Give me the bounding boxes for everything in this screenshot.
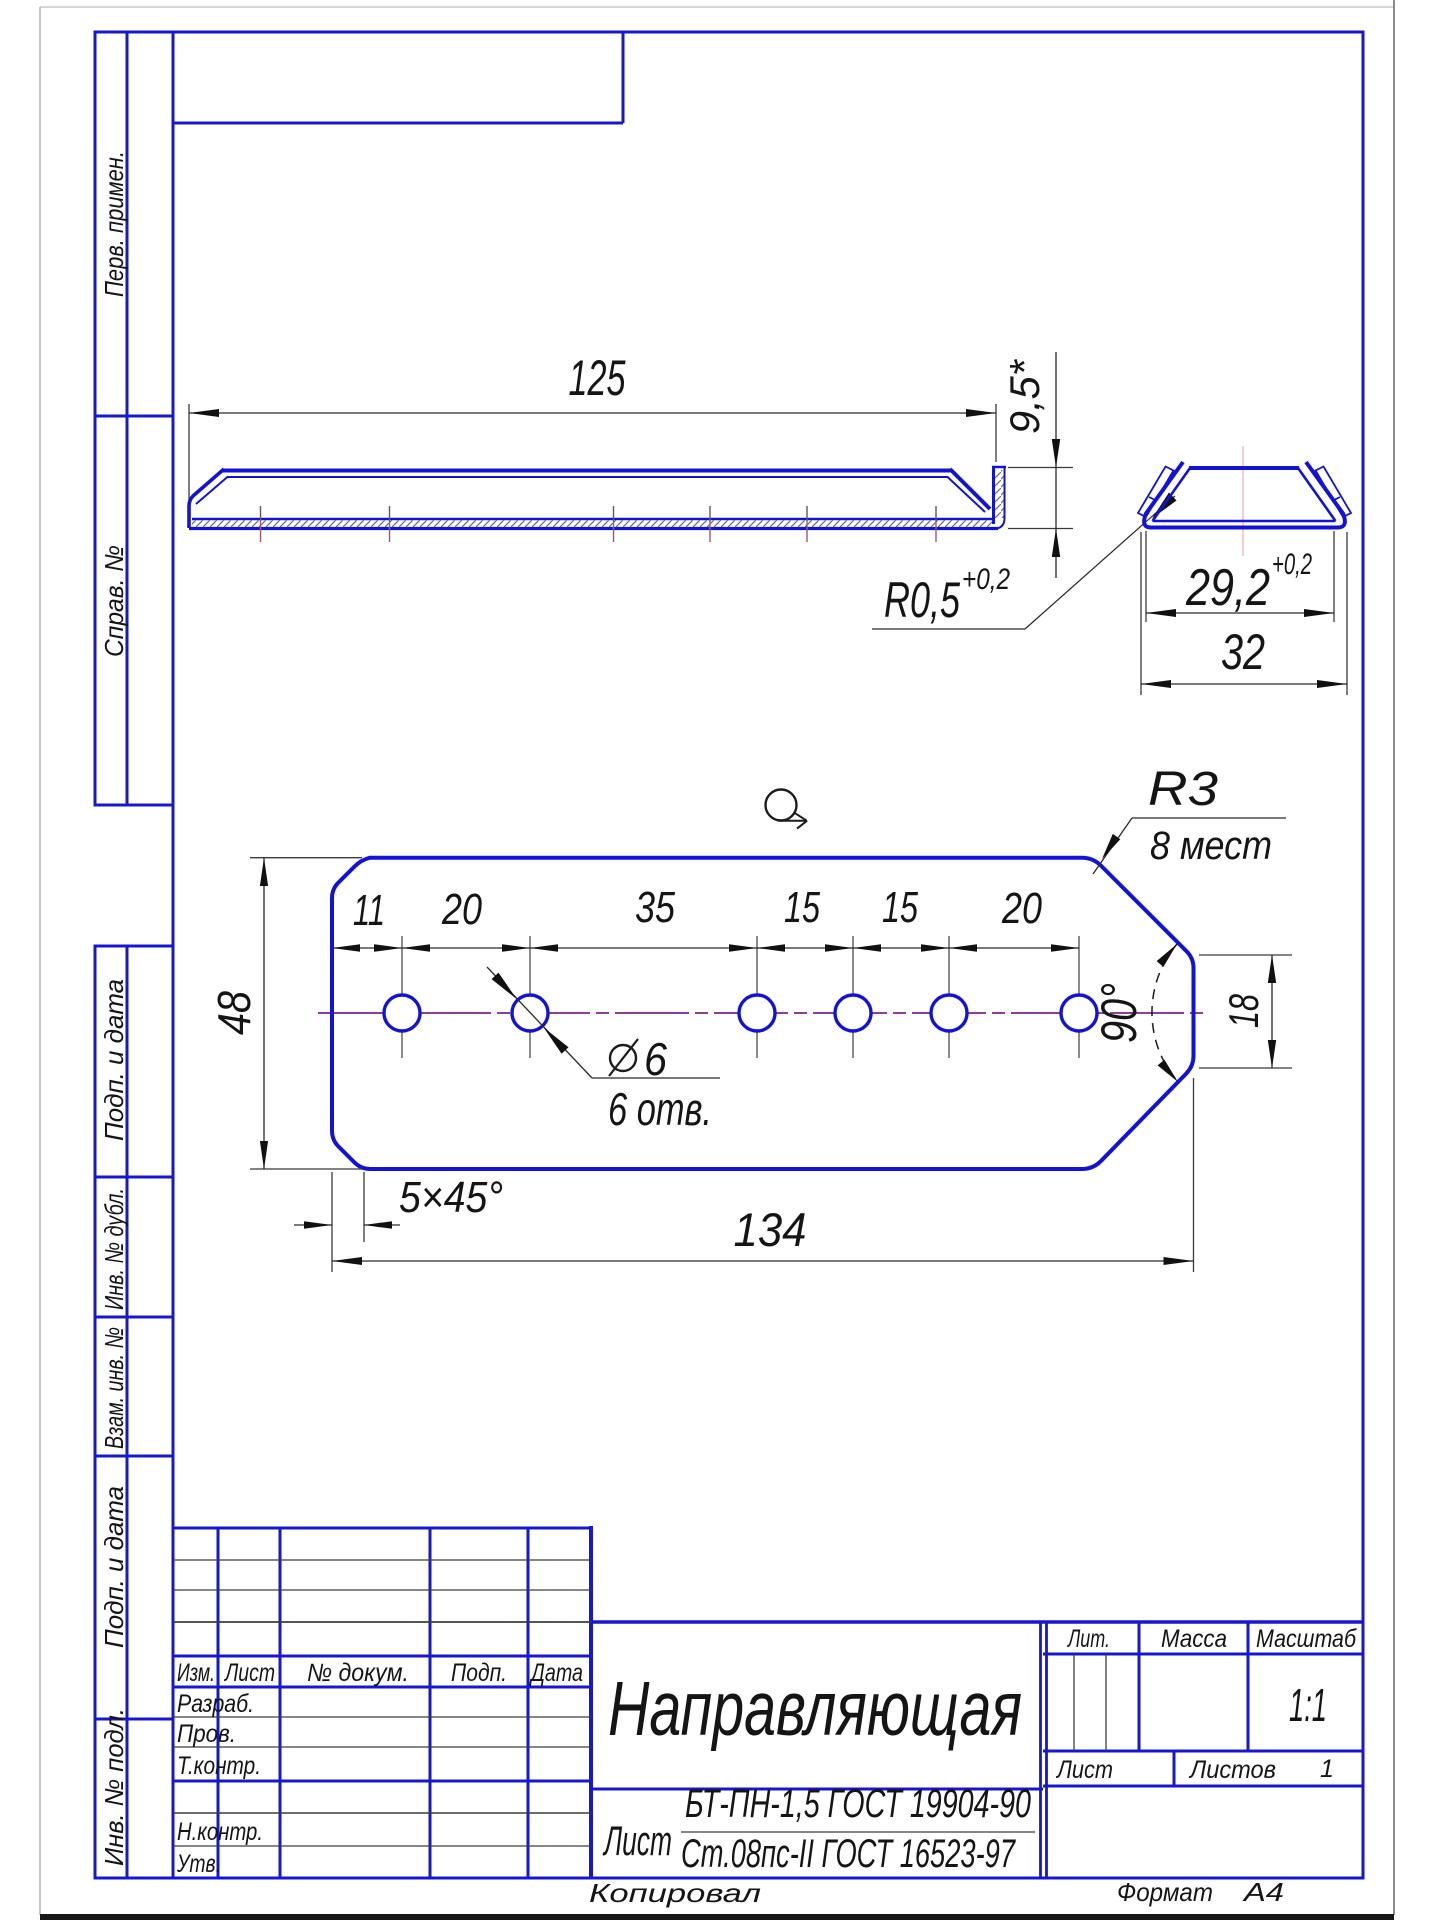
svg-text:Листов: Листов xyxy=(1188,1756,1276,1784)
svg-text:35: 35 xyxy=(635,883,675,932)
svg-text:+0,2: +0,2 xyxy=(1272,548,1312,581)
svg-text:Подп. и дата: Подп. и дата xyxy=(99,979,129,1141)
svg-text:8 мест: 8 мест xyxy=(1150,824,1272,868)
svg-text:БТ-ПН-1,5 ГОСТ 19904-90: БТ-ПН-1,5 ГОСТ 19904-90 xyxy=(685,1782,1031,1826)
svg-text:Перв. примен.: Перв. примен. xyxy=(99,151,129,297)
svg-text:Т.контр.: Т.контр. xyxy=(177,1752,261,1780)
svg-text:Разраб.: Разраб. xyxy=(177,1690,254,1718)
svg-text:Утв.: Утв. xyxy=(176,1850,221,1878)
svg-text:125: 125 xyxy=(569,350,626,406)
svg-text:15: 15 xyxy=(784,883,820,932)
svg-text:9,5*: 9,5* xyxy=(1001,358,1048,434)
svg-text:Формат: Формат xyxy=(1117,1877,1213,1907)
svg-text:+0,2: +0,2 xyxy=(962,563,1010,596)
svg-text:Н.контр.: Н.контр. xyxy=(177,1818,263,1846)
svg-text:А4: А4 xyxy=(1241,1877,1284,1907)
svg-text:Масса: Масса xyxy=(1161,1625,1227,1653)
svg-text:Копировал: Копировал xyxy=(589,1878,761,1908)
svg-text:11: 11 xyxy=(353,886,385,935)
svg-text:Инв. № дубл.: Инв. № дубл. xyxy=(99,1188,129,1310)
svg-text:Направляющая: Направляющая xyxy=(608,1666,1022,1752)
svg-text:R0,5: R0,5 xyxy=(884,572,960,628)
svg-text:90°: 90° xyxy=(1091,983,1147,1043)
svg-text:Взам. инв. №: Взам. инв. № xyxy=(99,1327,129,1449)
svg-text:R3: R3 xyxy=(1148,763,1218,816)
svg-text:Подп.: Подп. xyxy=(451,1659,507,1687)
svg-text:Масштаб: Масштаб xyxy=(1256,1625,1357,1653)
svg-text:Подп. и дата: Подп. и дата xyxy=(99,1486,129,1648)
svg-text:Изм.: Изм. xyxy=(177,1659,215,1687)
svg-text:48: 48 xyxy=(208,991,260,1035)
svg-text:6: 6 xyxy=(644,1033,667,1085)
svg-text:Лист: Лист xyxy=(602,1817,672,1864)
svg-text:1: 1 xyxy=(1320,1755,1334,1783)
svg-text:Лит.: Лит. xyxy=(1067,1625,1110,1653)
svg-text:Инв. № подл.: Инв. № подл. xyxy=(99,1708,129,1866)
svg-text:29,2: 29,2 xyxy=(1185,559,1270,617)
svg-text:Пров.: Пров. xyxy=(177,1720,236,1748)
svg-text:15: 15 xyxy=(882,883,918,932)
svg-text:32: 32 xyxy=(1221,624,1265,680)
svg-text:Лист: Лист xyxy=(1055,1756,1113,1784)
svg-text:Дата: Дата xyxy=(529,1659,583,1687)
svg-text:1:1: 1:1 xyxy=(1289,1679,1327,1731)
svg-text:Лист: Лист xyxy=(223,1659,275,1687)
svg-text:18: 18 xyxy=(1220,994,1267,1028)
svg-text:20: 20 xyxy=(1001,884,1042,933)
svg-text:Ст.08пс-II ГОСТ 16523-97: Ст.08пс-II ГОСТ 16523-97 xyxy=(681,1832,1016,1876)
svg-text:№ докум.: № докум. xyxy=(307,1659,409,1687)
svg-text:5×45°: 5×45° xyxy=(399,1173,503,1222)
svg-text:Справ. №: Справ. № xyxy=(99,545,129,657)
svg-text:20: 20 xyxy=(441,885,482,934)
svg-text:134: 134 xyxy=(734,1203,807,1256)
svg-text:6 отв.: 6 отв. xyxy=(608,1083,712,1135)
